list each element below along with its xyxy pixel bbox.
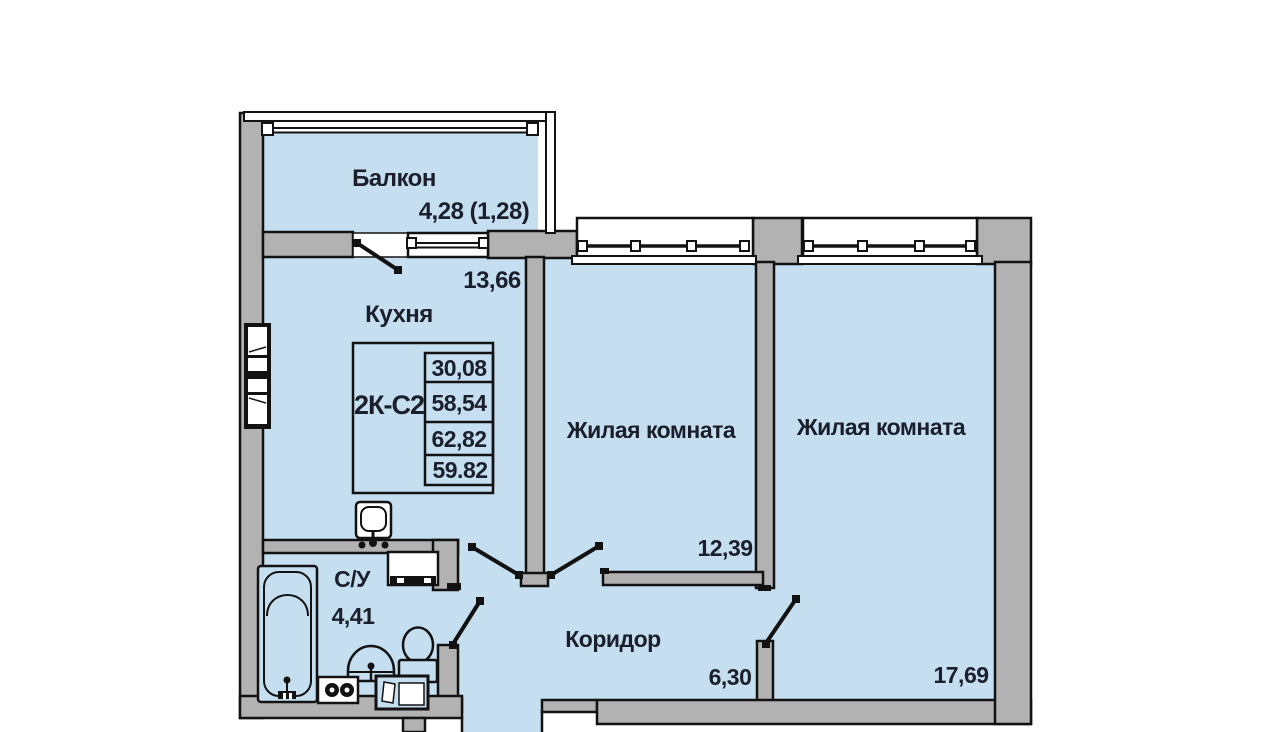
bathtub-tap xyxy=(284,677,291,684)
balcony-label: Балкон xyxy=(352,165,436,192)
washing-machine xyxy=(376,676,428,709)
glazing-end-mark xyxy=(527,123,538,135)
balcony-parapet-top xyxy=(244,112,555,121)
wall-balcony-kitchen-right xyxy=(488,231,577,258)
entry-recess-floor xyxy=(462,697,542,732)
living-room-1-area: 12,39 xyxy=(697,535,752,561)
wall-bathroom-right-lower xyxy=(438,645,458,700)
table-value-3: 62,82 xyxy=(431,426,486,452)
window-mullion xyxy=(858,241,867,251)
corridor-area: 6,30 xyxy=(709,664,752,690)
wall-kitchen-divider xyxy=(526,257,544,574)
wall-right-exterior xyxy=(995,262,1031,724)
living-room-2-label: Жилая комната xyxy=(796,414,966,440)
wall-window-pier xyxy=(753,218,802,264)
wall-balcony-kitchen-left xyxy=(263,232,353,257)
wall-rooms-divider-lower xyxy=(757,641,773,703)
corridor-label: Коридор xyxy=(565,626,661,652)
wall-room1-bottom xyxy=(603,572,763,585)
kitchen-label: Кухня xyxy=(365,301,433,328)
bathroom-label: С/У xyxy=(334,566,371,592)
window-mullion xyxy=(740,241,749,251)
washer-knob-unit xyxy=(318,677,358,703)
window-mullion xyxy=(479,238,488,248)
floor-plan-page: 2К-С2 30,08 58,54 62,82 59.82 Балкон 4,2… xyxy=(0,0,1280,732)
door-stop xyxy=(758,585,771,591)
window-kitchen-balcony xyxy=(408,233,488,257)
apartment-type-label: 2К-С2 xyxy=(354,390,424,420)
floor-plan-svg: 2К-С2 30,08 58,54 62,82 59.82 Балкон 4,2… xyxy=(0,0,1280,732)
bathtub xyxy=(258,566,317,702)
wall-bottom-protrusion xyxy=(403,718,425,732)
table-value-4: 59.82 xyxy=(432,457,487,483)
wall-bottom-main xyxy=(597,700,1031,724)
balcony-area: 4,28 (1,28) xyxy=(419,198,530,225)
wall-top-right-corner xyxy=(977,218,1031,264)
wall-rooms-divider-upper xyxy=(756,262,774,588)
door-stop xyxy=(600,568,609,574)
table-value-1: 30,08 xyxy=(431,355,487,381)
balcony-parapet-right xyxy=(546,112,555,233)
window-mullion xyxy=(915,241,924,251)
window-mullion xyxy=(631,241,640,251)
wall-bottom-thin xyxy=(542,700,597,712)
window-mullion xyxy=(407,238,416,248)
window-mullion xyxy=(804,241,813,251)
bathroom-area: 4,41 xyxy=(332,603,375,629)
living-room-1-label: Жилая комната xyxy=(566,417,736,443)
kitchen-area: 13,66 xyxy=(463,267,521,294)
table-value-2: 58,54 xyxy=(431,390,487,416)
door-stop xyxy=(447,583,461,590)
window-mullion xyxy=(687,241,696,251)
window-room2-sill xyxy=(798,256,982,264)
bathroom-cabinet xyxy=(388,552,438,585)
window-mullion xyxy=(966,241,975,251)
wall-kitchen-divider-foot xyxy=(521,573,548,586)
toilet xyxy=(399,628,437,683)
vent-shaft xyxy=(244,323,271,429)
glazing-end-mark xyxy=(262,123,273,135)
window-room1-sill xyxy=(572,256,756,264)
window-mullion xyxy=(578,241,587,251)
living-room-2-area: 17,69 xyxy=(933,662,988,688)
